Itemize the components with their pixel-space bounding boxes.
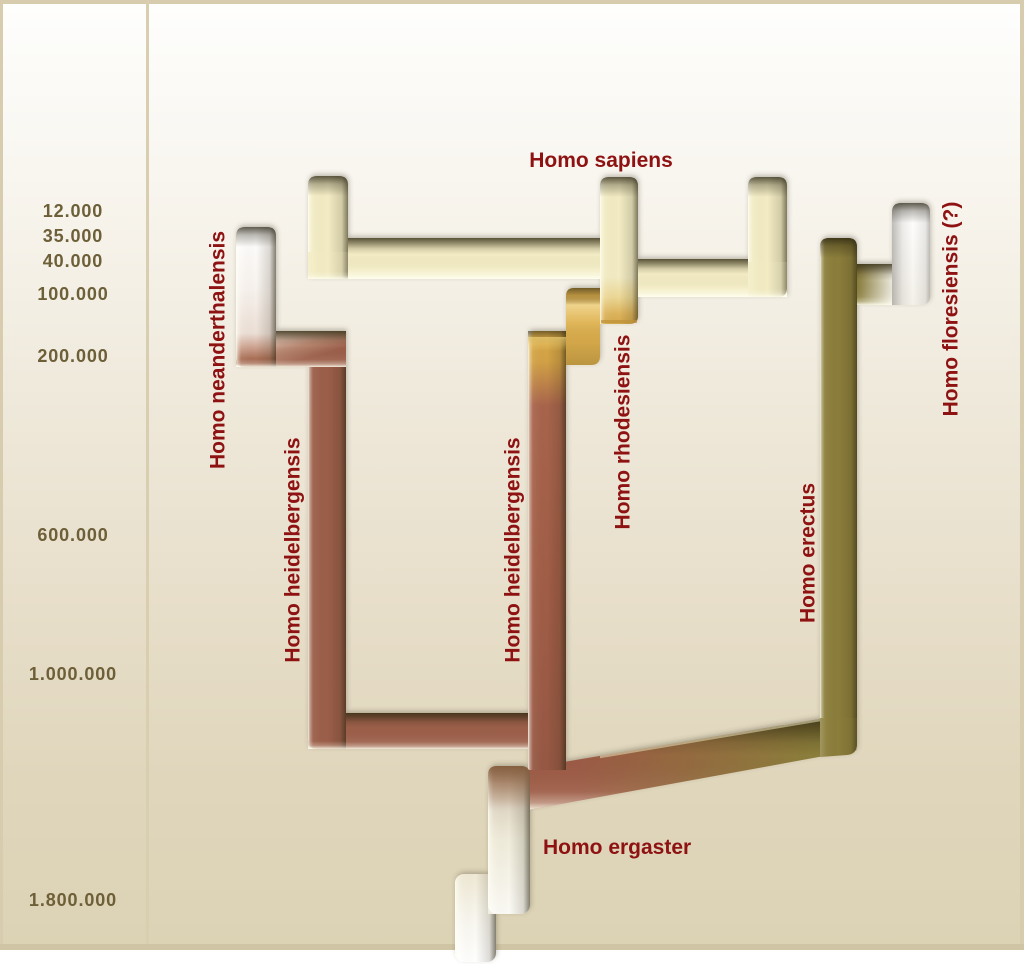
svg-text:Homo floresiensis (?): Homo floresiensis (?)	[940, 202, 963, 417]
svg-text:100.000: 100.000	[37, 284, 108, 304]
svg-text:200.000: 200.000	[37, 346, 108, 366]
svg-text:12.000: 12.000	[43, 201, 103, 221]
svg-text:Homo rhodesiensis: Homo rhodesiensis	[612, 335, 635, 530]
svg-text:Homo ergaster: Homo ergaster	[543, 836, 691, 859]
svg-text:Homo erectus: Homo erectus	[797, 483, 820, 623]
svg-text:40.000: 40.000	[43, 251, 103, 271]
svg-text:Homo heidelbergensis: Homo heidelbergensis	[502, 437, 525, 662]
svg-text:Homo sapiens: Homo sapiens	[529, 149, 673, 172]
svg-text:1.000.000: 1.000.000	[29, 664, 117, 684]
svg-text:Homo heidelbergensis: Homo heidelbergensis	[282, 437, 305, 662]
svg-text:35.000: 35.000	[43, 226, 103, 246]
svg-text:600.000: 600.000	[37, 525, 108, 545]
svg-text:1.800.000: 1.800.000	[29, 890, 117, 910]
svg-text:Homo neanderthalensis: Homo neanderthalensis	[207, 231, 230, 469]
